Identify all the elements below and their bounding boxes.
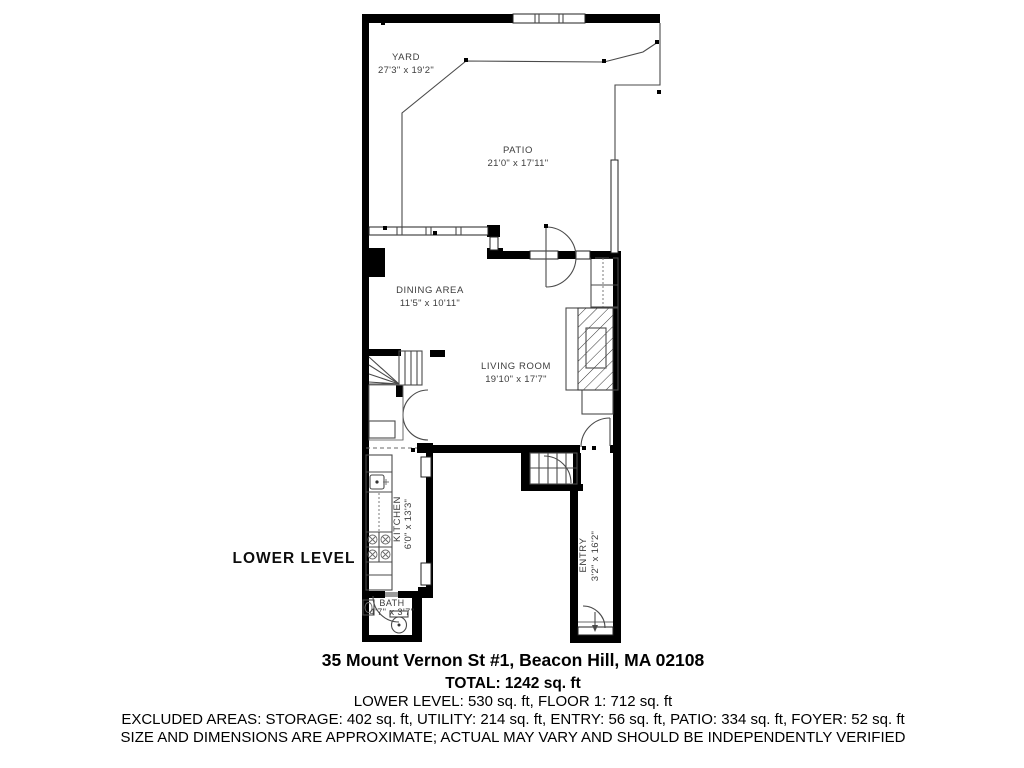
entry-label: ENTRY bbox=[578, 537, 589, 572]
plan-level-title: LOWER LEVEL bbox=[233, 550, 356, 567]
kitchen-sink bbox=[370, 475, 389, 489]
yard-fence-lines bbox=[402, 23, 660, 228]
patio-label: PATIO bbox=[503, 145, 533, 156]
footer-text: 35 Mount Vernon St #1, Beacon Hill, MA 0… bbox=[121, 650, 906, 746]
wall-niche-upper bbox=[421, 457, 431, 477]
patio-right-window bbox=[611, 160, 618, 253]
floor-plan-page: YARD 27'3" x 19'2" PATIO 21'0" x 17'11" … bbox=[0, 0, 1024, 768]
kitchen-label: KITCHEN bbox=[392, 496, 403, 542]
total-area-line: TOTAL: 1242 sq. ft bbox=[445, 675, 581, 692]
levels-line: LOWER LEVEL: 530 sq. ft, FLOOR 1: 712 sq… bbox=[354, 693, 673, 710]
yard-top-window bbox=[513, 14, 585, 23]
main-staircase bbox=[369, 351, 422, 385]
dining-label: DINING AREA bbox=[396, 285, 464, 296]
disclaimer-line: SIZE AND DIMENSIONS ARE APPROXIMATE; ACT… bbox=[121, 729, 906, 746]
wall-niche-lower bbox=[421, 563, 431, 585]
living-label: LIVING ROOM bbox=[481, 361, 551, 372]
windows bbox=[369, 14, 618, 259]
bath-dims: 4'7" x 3'7" bbox=[370, 607, 415, 617]
living-room-door bbox=[581, 418, 610, 447]
dining-dims: 11'5" x 10'11" bbox=[400, 298, 460, 309]
living-dims: 19'10" x 17'7" bbox=[485, 374, 547, 385]
connector-window bbox=[490, 237, 498, 250]
address-line: 35 Mount Vernon St #1, Beacon Hill, MA 0… bbox=[322, 650, 705, 670]
patio-dims: 21'0" x 17'11" bbox=[488, 158, 549, 169]
entry-dims: 3'2" x 16'2" bbox=[590, 531, 601, 581]
storage-double-doors bbox=[403, 388, 428, 440]
fireplace bbox=[566, 308, 618, 414]
front-entry-door bbox=[578, 606, 613, 635]
floor-plan-drawing: YARD 27'3" x 19'2" PATIO 21'0" x 17'11" … bbox=[0, 0, 1024, 768]
yard-label: YARD bbox=[392, 52, 420, 63]
stove-burners bbox=[366, 532, 392, 562]
yard-dims: 27'3" x 19'2" bbox=[378, 65, 434, 76]
excluded-line: EXCLUDED AREAS: STORAGE: 402 sq. ft, UTI… bbox=[121, 711, 905, 728]
kitchen-dims: 6'0" x 13'3" bbox=[403, 499, 414, 549]
